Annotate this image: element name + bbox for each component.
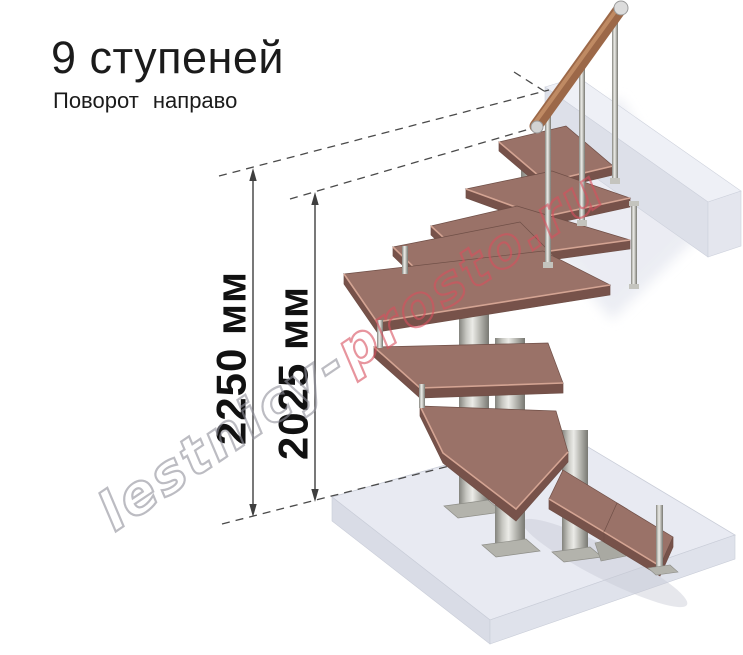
dashed-line-top-corner bbox=[514, 72, 544, 91]
page-title: 9 ступеней bbox=[51, 34, 284, 81]
baluster bbox=[612, 20, 618, 184]
dashed-line-top-level bbox=[219, 90, 549, 176]
page-subtitle: Поворот направо bbox=[53, 88, 237, 114]
handrail-cap-bottom bbox=[531, 121, 543, 133]
outer-rod bbox=[631, 204, 637, 286]
staircase-diagram-page: 2250 мм 2025 мм lestnicy- prosto.ru 9 ст… bbox=[0, 0, 743, 655]
handrail-cap-top bbox=[614, 1, 628, 15]
outer-rod bbox=[656, 505, 663, 569]
